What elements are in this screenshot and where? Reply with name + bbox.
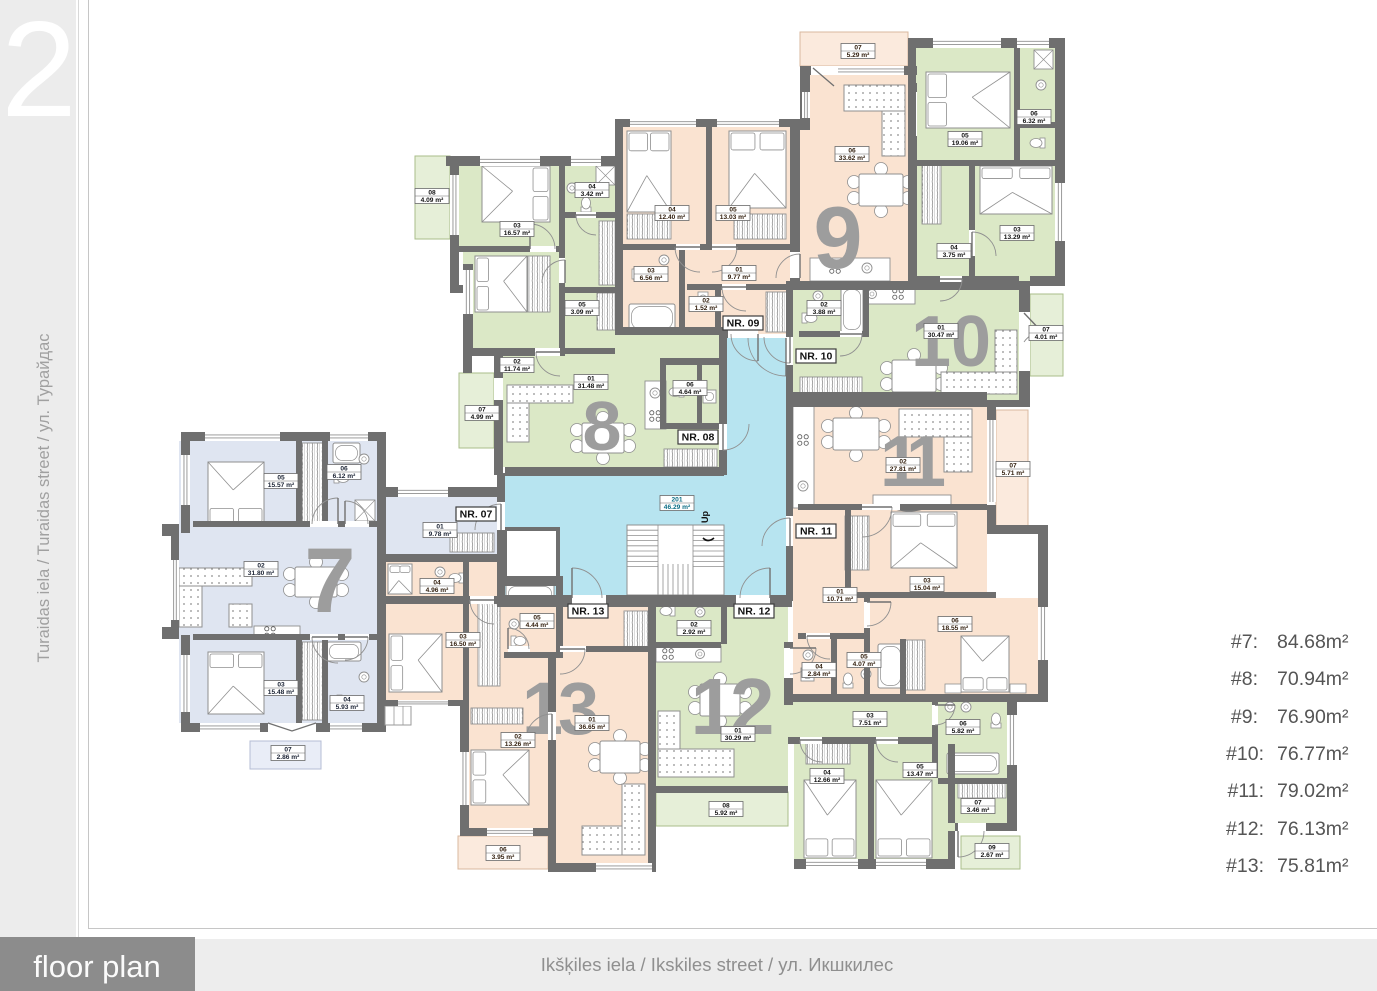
svg-text:07: 07	[854, 45, 862, 52]
svg-text:NR. 13: NR. 13	[572, 606, 605, 618]
svg-text:01: 01	[436, 524, 444, 531]
svg-text:02: 02	[690, 622, 698, 629]
svg-text:01: 01	[937, 325, 945, 332]
svg-text:floor plan: floor plan	[33, 949, 161, 984]
svg-text:3.88 m²: 3.88 m²	[813, 309, 837, 316]
svg-text:Turaidas iela / Turaidas stree: Turaidas iela / Turaidas street / ул. Ту…	[35, 333, 53, 662]
svg-text:08: 08	[428, 190, 436, 197]
svg-text:05: 05	[533, 615, 541, 622]
svg-text:#7:: #7:	[1231, 631, 1258, 653]
svg-text:NR. 08: NR. 08	[682, 432, 715, 444]
svg-text:06: 06	[686, 382, 694, 389]
svg-text:NR. 09: NR. 09	[727, 318, 760, 330]
svg-text:02: 02	[702, 298, 710, 305]
svg-text:03: 03	[647, 268, 655, 275]
svg-text:05: 05	[860, 654, 868, 661]
svg-text:#12:: #12:	[1226, 818, 1264, 840]
svg-text:19.06 m²: 19.06 m²	[952, 140, 979, 147]
svg-text:01: 01	[588, 717, 596, 724]
svg-text:30.47 m²: 30.47 m²	[928, 332, 955, 339]
svg-text:#8:: #8:	[1231, 668, 1258, 690]
svg-text:01: 01	[735, 267, 743, 274]
svg-text:84.68m²: 84.68m²	[1277, 631, 1349, 653]
svg-text:76.77m²: 76.77m²	[1277, 743, 1349, 765]
svg-text:79.02m²: 79.02m²	[1277, 780, 1349, 802]
svg-text:02: 02	[820, 302, 828, 309]
svg-text:11.74 m²: 11.74 m²	[504, 366, 531, 373]
svg-text:07: 07	[284, 747, 292, 754]
svg-text:70.94m²: 70.94m²	[1277, 668, 1349, 690]
svg-text:3.09 m²: 3.09 m²	[571, 309, 595, 316]
svg-text:6.12 m²: 6.12 m²	[333, 473, 357, 480]
svg-text:76.90m²: 76.90m²	[1277, 706, 1349, 728]
svg-text:6.56 m²: 6.56 m²	[640, 275, 664, 282]
svg-text:4.07 m²: 4.07 m²	[853, 661, 877, 668]
svg-text:03: 03	[1013, 227, 1021, 234]
svg-text:2.92 m²: 2.92 m²	[683, 629, 707, 636]
svg-text:01: 01	[836, 589, 844, 596]
svg-text:3.95 m²: 3.95 m²	[492, 854, 516, 861]
svg-text:10.71 m²: 10.71 m²	[827, 596, 854, 603]
svg-text:4.96 m²: 4.96 m²	[426, 587, 450, 594]
svg-text:03: 03	[923, 578, 931, 585]
svg-text:#9:: #9:	[1231, 706, 1258, 728]
svg-text:06: 06	[848, 148, 856, 155]
svg-text:18.55 m²: 18.55 m²	[942, 625, 969, 632]
svg-text:16.50 m²: 16.50 m²	[450, 641, 477, 648]
svg-text:5.29 m²: 5.29 m²	[847, 52, 871, 59]
svg-text:3.75 m²: 3.75 m²	[943, 252, 967, 259]
svg-text:05: 05	[916, 764, 924, 771]
svg-text:3.42 m²: 3.42 m²	[581, 191, 605, 198]
svg-text:04: 04	[588, 184, 596, 191]
svg-text:06: 06	[499, 847, 507, 854]
svg-text:08: 08	[722, 803, 730, 810]
svg-text:03: 03	[459, 634, 467, 641]
svg-text:09: 09	[988, 845, 996, 852]
svg-text:10: 10	[911, 302, 991, 382]
svg-text:06: 06	[340, 466, 348, 473]
svg-text:2.86 m²: 2.86 m²	[277, 754, 301, 761]
svg-text:6.32 m²: 6.32 m²	[1023, 118, 1047, 125]
svg-text:3.46 m²: 3.46 m²	[967, 807, 991, 814]
svg-text:33.62 m²: 33.62 m²	[839, 155, 866, 162]
svg-text:201: 201	[671, 497, 682, 504]
svg-text:36.65 m²: 36.65 m²	[579, 724, 606, 731]
svg-text:05: 05	[729, 207, 737, 214]
svg-text:2.84 m²: 2.84 m²	[808, 671, 832, 678]
svg-text:76.13m²: 76.13m²	[1277, 818, 1349, 840]
svg-text:06: 06	[1030, 111, 1038, 118]
svg-text:05: 05	[961, 133, 969, 140]
svg-text:NR. 12: NR. 12	[738, 606, 771, 618]
svg-text:13.29 m²: 13.29 m²	[1004, 234, 1031, 241]
svg-text:04: 04	[343, 697, 351, 704]
svg-text:9.78 m²: 9.78 m²	[429, 531, 453, 538]
svg-text:13.03 m²: 13.03 m²	[720, 214, 747, 221]
svg-text:06: 06	[951, 618, 959, 625]
svg-text:31.48 m²: 31.48 m²	[578, 383, 605, 390]
svg-text:02: 02	[514, 734, 522, 741]
svg-text:02: 02	[513, 359, 521, 366]
svg-text:03: 03	[513, 223, 521, 230]
svg-text:04: 04	[823, 770, 831, 777]
svg-text:NR. 07: NR. 07	[460, 509, 493, 521]
svg-text:12.40 m²: 12.40 m²	[659, 214, 686, 221]
svg-text:Ikšķiles iela / Ikskiles stree: Ikšķiles iela / Ikskiles street / ул. Ик…	[541, 954, 893, 975]
svg-text:07: 07	[1009, 463, 1017, 470]
svg-text:4.01 m²: 4.01 m²	[1035, 334, 1059, 341]
svg-text:2.67 m²: 2.67 m²	[981, 852, 1005, 859]
svg-text:4.44 m²: 4.44 m²	[526, 622, 550, 629]
svg-text:#11:: #11:	[1227, 780, 1264, 802]
svg-text:12.66 m²: 12.66 m²	[814, 777, 841, 784]
svg-text:05: 05	[277, 475, 285, 482]
svg-text:8: 8	[583, 387, 622, 465]
svg-text:NR. 11: NR. 11	[800, 526, 832, 538]
svg-text:Up: Up	[700, 511, 710, 523]
svg-text:15.04 m²: 15.04 m²	[914, 585, 941, 592]
svg-text:13.47 m²: 13.47 m²	[907, 771, 934, 778]
svg-text:27.81 m²: 27.81 m²	[890, 466, 917, 473]
svg-text:06: 06	[959, 721, 967, 728]
svg-text:01: 01	[587, 376, 595, 383]
svg-text:07: 07	[1042, 327, 1050, 334]
svg-text:5.82 m²: 5.82 m²	[952, 728, 976, 735]
svg-text:01: 01	[734, 728, 742, 735]
svg-text:02: 02	[257, 563, 265, 570]
svg-text:07: 07	[974, 800, 982, 807]
svg-text:04: 04	[950, 245, 958, 252]
svg-text:31.80 m²: 31.80 m²	[248, 570, 275, 577]
svg-text:9: 9	[814, 188, 863, 287]
svg-text:4.64 m²: 4.64 m²	[679, 389, 703, 396]
svg-text:03: 03	[277, 682, 285, 689]
svg-text:4.09 m²: 4.09 m²	[421, 197, 445, 204]
svg-text:75.81m²: 75.81m²	[1277, 855, 1349, 877]
svg-text:7: 7	[304, 530, 355, 632]
svg-text:2: 2	[1, 0, 77, 145]
svg-text:5.93 m²: 5.93 m²	[336, 704, 360, 711]
svg-text:02: 02	[899, 459, 907, 466]
svg-text:5.92 m²: 5.92 m²	[715, 810, 739, 817]
svg-text:46.29 m²: 46.29 m²	[664, 504, 691, 511]
svg-text:#10:: #10:	[1226, 743, 1264, 765]
svg-text:03: 03	[866, 713, 874, 720]
svg-text:04: 04	[668, 207, 676, 214]
svg-text:16.57 m²: 16.57 m²	[504, 230, 531, 237]
svg-text:7.51 m²: 7.51 m²	[859, 720, 883, 727]
svg-text:07: 07	[478, 407, 486, 414]
svg-text:30.29 m²: 30.29 m²	[725, 735, 752, 742]
svg-text:15.48 m²: 15.48 m²	[268, 689, 295, 696]
svg-text:4.99 m²: 4.99 m²	[471, 414, 495, 421]
svg-text:#13:: #13:	[1226, 855, 1264, 877]
svg-text:05: 05	[578, 302, 586, 309]
svg-text:04: 04	[433, 580, 441, 587]
svg-text:9.77 m²: 9.77 m²	[728, 274, 752, 281]
svg-text:NR. 10: NR. 10	[800, 351, 833, 363]
svg-text:04: 04	[815, 664, 823, 671]
svg-text:1.52 m²: 1.52 m²	[695, 305, 719, 312]
svg-text:13.26 m²: 13.26 m²	[505, 741, 532, 748]
svg-text:5.71 m²: 5.71 m²	[1002, 470, 1026, 477]
svg-text:15.57 m²: 15.57 m²	[268, 482, 295, 489]
